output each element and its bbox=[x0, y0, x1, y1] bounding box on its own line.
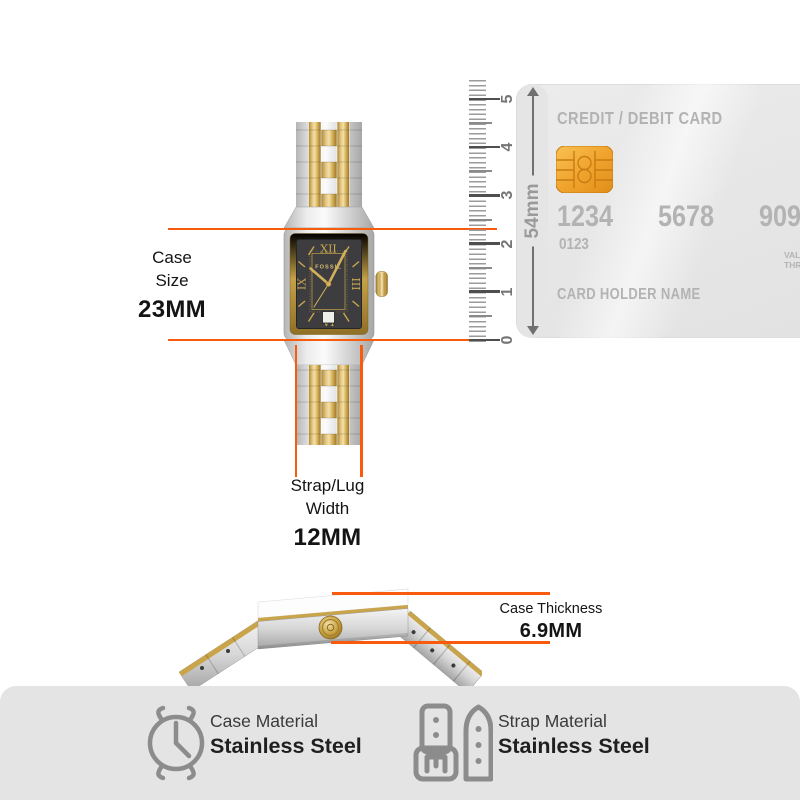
hands-hub bbox=[326, 281, 331, 286]
ruler-number: 2 bbox=[499, 234, 517, 254]
watch-front-view: FOSSIL XII VI III IX bbox=[265, 118, 395, 480]
card-height-scale: 54mm bbox=[517, 84, 548, 338]
ruler-number: 4 bbox=[499, 137, 517, 157]
watch-case-icon bbox=[140, 705, 212, 781]
numeral-9: IX bbox=[296, 278, 309, 290]
case-size-value: 23MM bbox=[118, 295, 226, 325]
strap-width-word2: Width bbox=[250, 497, 405, 520]
bracelet-bottom bbox=[296, 365, 362, 445]
ruler-tick-half bbox=[469, 219, 492, 221]
card-sub-number-text: 0123 bbox=[559, 236, 589, 254]
card-number-row: 1234 5678 9098 bbox=[557, 200, 800, 234]
arrow-up-icon bbox=[527, 87, 539, 96]
card-title-text: CREDIT / DEBIT CARD bbox=[557, 108, 723, 129]
side-crown bbox=[319, 616, 342, 639]
strap-width-line-left bbox=[295, 345, 298, 477]
ruler-tick-major bbox=[469, 194, 500, 197]
strap-width-label: Strap/Lug Width 12MM bbox=[250, 474, 405, 553]
strap-material-label: Strap Material bbox=[498, 710, 650, 733]
credit-card: CREDIT / DEBIT CARD 1234 5678 9098 bbox=[516, 84, 800, 338]
card-number-group: 1234 bbox=[557, 200, 613, 234]
card-number-group: 9098 bbox=[759, 200, 800, 234]
strap-width-word1: Strap/Lug bbox=[250, 474, 405, 497]
case-material-group: Case Material Stainless Steel bbox=[210, 710, 362, 760]
case-thickness-value: 6.9MM bbox=[460, 619, 642, 644]
case-size-line-top bbox=[168, 228, 497, 231]
ruler-tick-half bbox=[469, 170, 492, 172]
card-holder-text: CARD HOLDER NAME bbox=[557, 286, 701, 304]
ruler-tick-half bbox=[469, 315, 492, 317]
numeral-3: III bbox=[349, 277, 362, 290]
card-holder-label: CARD HOLDER NAME bbox=[557, 286, 728, 304]
ruler-number: 5 bbox=[499, 89, 517, 109]
ruler-tick-half bbox=[469, 122, 492, 124]
case-thickness-word: Case Thickness bbox=[460, 600, 642, 618]
numeral-12: XII bbox=[320, 243, 337, 256]
date-window bbox=[323, 312, 335, 324]
ruler-tick-major bbox=[469, 146, 500, 149]
case-thickness-label: Case Thickness 6.9MM bbox=[460, 600, 642, 644]
case-material-label: Case Material bbox=[210, 710, 362, 733]
ruler-tick-major bbox=[469, 290, 500, 293]
card-title: CREDIT / DEBIT CARD bbox=[557, 108, 754, 129]
ruler-tick-major bbox=[469, 339, 500, 342]
strap-material-group: Strap Material Stainless Steel bbox=[498, 710, 650, 760]
ruler-number: 1 bbox=[499, 282, 517, 302]
ruler-number: 0 bbox=[499, 330, 517, 350]
card-number-group: 5678 bbox=[658, 200, 714, 234]
arrow-down-icon bbox=[527, 326, 539, 335]
bracelet-top bbox=[296, 122, 362, 215]
watch-dimensions-infographic: FOSSIL XII VI III IX bbox=[0, 0, 800, 800]
materials-panel: Case Material Stainless Steel Strap Mate… bbox=[0, 686, 800, 800]
strap-material-value: Stainless Steel bbox=[498, 733, 650, 760]
ruler-number: 3 bbox=[499, 185, 517, 205]
strap-width-line-right bbox=[360, 345, 363, 477]
side-bracelet-left bbox=[179, 620, 272, 689]
strap-width-value: 12MM bbox=[250, 523, 405, 553]
card-valid-line2: THRU bbox=[784, 260, 800, 270]
case-size-line-bottom bbox=[168, 339, 497, 342]
scale-value-label: 54mm bbox=[520, 176, 546, 247]
ruler-tick-half bbox=[469, 267, 492, 269]
case-size-word2: Size bbox=[118, 269, 226, 292]
card-chip-icon bbox=[556, 146, 613, 193]
case-size-label: Case Size 23MM bbox=[118, 246, 226, 325]
ruler-tick-major bbox=[469, 98, 500, 101]
ruler-tick-major bbox=[469, 242, 500, 245]
card-valid-line1: VALID bbox=[784, 250, 800, 260]
case-material-value: Stainless Steel bbox=[210, 733, 362, 760]
card-valid-thru: VALID THRU bbox=[784, 250, 800, 270]
lug-flare-top bbox=[284, 207, 374, 228]
watch-strap-icon bbox=[413, 702, 493, 782]
card-sub-number: 0123 bbox=[559, 236, 595, 254]
ruler-minor-ticks bbox=[469, 80, 486, 342]
thickness-line-top bbox=[332, 592, 550, 595]
case-size-word1: Case bbox=[118, 246, 226, 269]
